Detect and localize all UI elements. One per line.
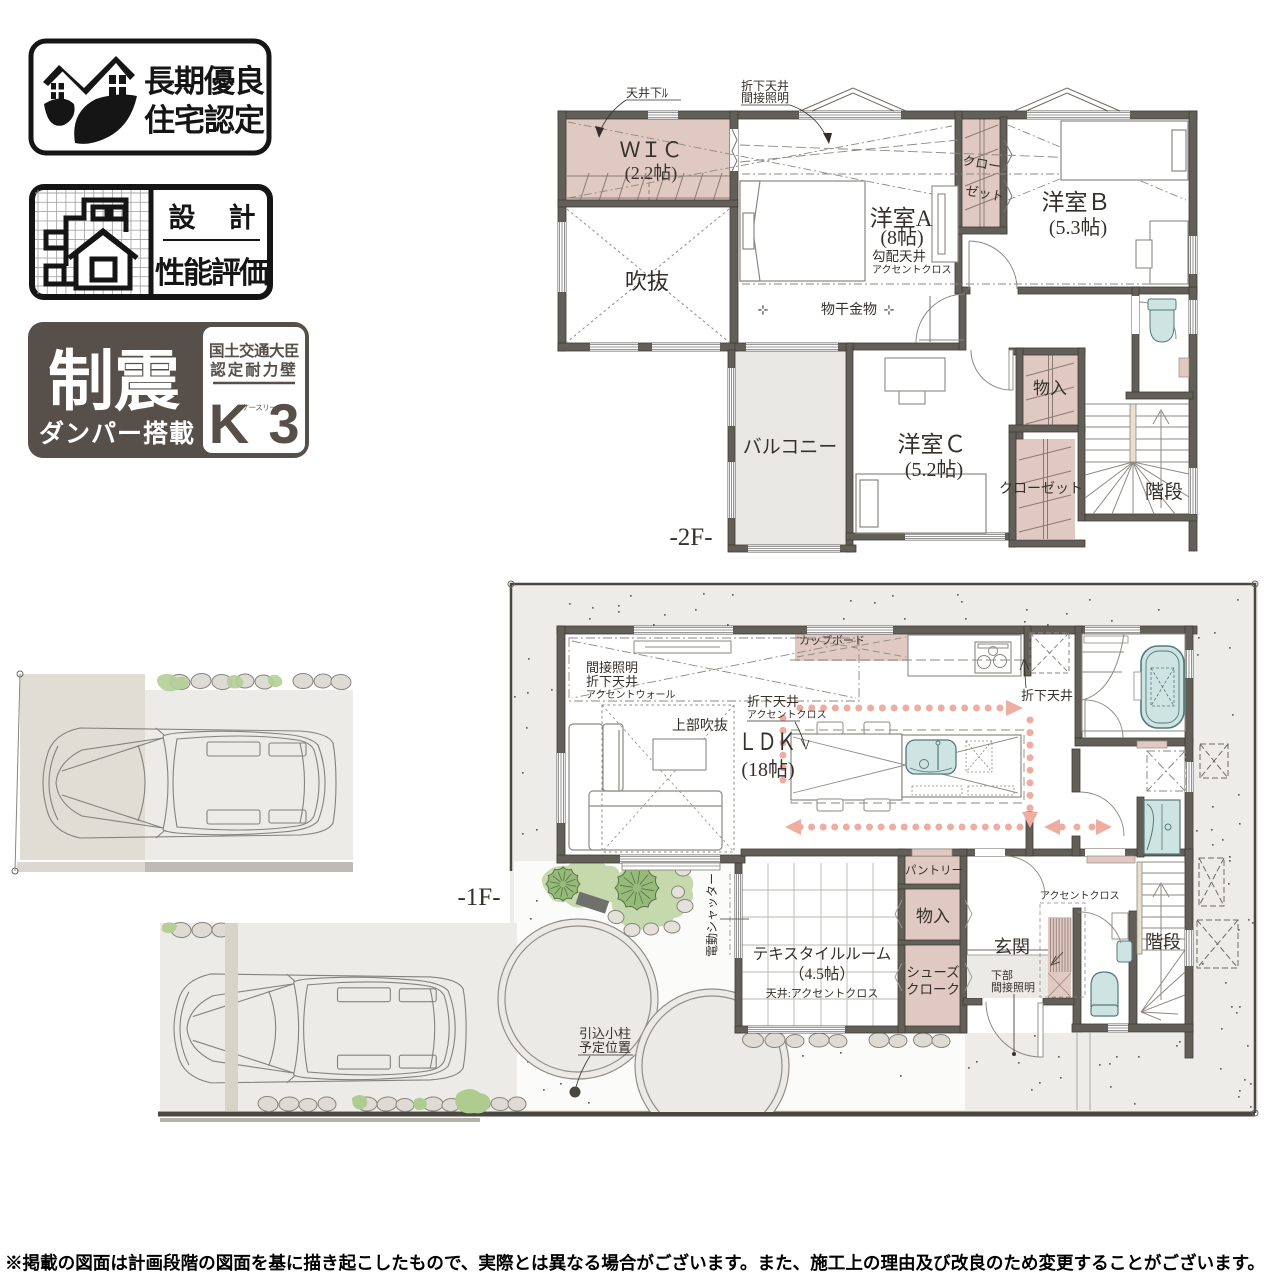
svg-text:勾配天井: 勾配天井 xyxy=(872,249,926,264)
svg-text:アクセントクロス: アクセントクロス xyxy=(747,709,827,721)
svg-text:間接照明: 間接照明 xyxy=(741,90,789,105)
svg-text:折下天井: 折下天井 xyxy=(586,674,638,689)
svg-text:物入: 物入 xyxy=(916,907,950,926)
svg-text:テキスタイルルーム: テキスタイルルーム xyxy=(753,945,892,963)
svg-text:(5.3帖): (5.3帖) xyxy=(1049,216,1107,239)
svg-text:洋室Ｃ: 洋室Ｃ xyxy=(898,432,967,457)
svg-text:折下天井: 折下天井 xyxy=(747,694,799,709)
svg-text:物入: 物入 xyxy=(1033,379,1067,398)
svg-text:国土交通大臣: 国土交通大臣 xyxy=(209,341,299,360)
svg-text:⊹: ⊹ xyxy=(884,302,895,317)
svg-text:クローク: クローク xyxy=(906,982,960,997)
svg-text:玄関: 玄関 xyxy=(994,937,1030,957)
svg-text:アクセントウォール: アクセントウォール xyxy=(586,689,676,701)
svg-text:天井下ﾙ: 天井下ﾙ xyxy=(626,86,668,100)
svg-text:※掲載の図面は計画段階の図面を基に描き起こしたもので、実際と: ※掲載の図面は計画段階の図面を基に描き起こしたもので、実際とは異なる場合がござい… xyxy=(5,1252,1265,1273)
svg-text:K: K xyxy=(209,392,249,455)
svg-text:-2F-: -2F- xyxy=(669,524,712,551)
svg-text:階段: 階段 xyxy=(1145,932,1181,952)
svg-text:住宅認定: 住宅認定 xyxy=(144,103,265,138)
svg-text:間接照明: 間接照明 xyxy=(991,981,1035,994)
svg-text:制震: 制震 xyxy=(48,346,181,419)
svg-text:階段: 階段 xyxy=(1145,481,1183,503)
svg-text:⊹: ⊹ xyxy=(758,302,769,317)
svg-text:下部: 下部 xyxy=(991,968,1013,982)
svg-text:間接照明: 間接照明 xyxy=(586,660,638,675)
svg-text:天井:アクセントクロス: 天井:アクセントクロス xyxy=(766,986,879,1000)
svg-text:ダンパー搭載: ダンパー搭載 xyxy=(39,419,195,448)
svg-text:設: 設 xyxy=(169,202,197,233)
svg-text:電動シャッター: 電動シャッター xyxy=(705,873,719,957)
svg-text:上部吹抜: 上部吹抜 xyxy=(672,718,728,734)
svg-text:(5.2帖): (5.2帖) xyxy=(905,458,963,481)
svg-text:シューズ: シューズ xyxy=(906,965,959,980)
svg-text:認定耐力壁: 認定耐力壁 xyxy=(210,360,298,379)
svg-text:物干金物: 物干金物 xyxy=(821,302,877,318)
svg-text:長期優良: 長期優良 xyxy=(144,64,265,99)
svg-text:ＬＤＫ: ＬＤＫ xyxy=(738,730,796,756)
svg-text:引込小柱: 引込小柱 xyxy=(579,1026,631,1041)
svg-text:バルコニー: バルコニー xyxy=(743,437,838,458)
svg-text:アクセントクロス: アクセントクロス xyxy=(872,264,952,276)
svg-text:カップボード: カップボード xyxy=(799,634,865,647)
svg-text:吹抜: 吹抜 xyxy=(625,269,669,294)
svg-text:予定位置: 予定位置 xyxy=(579,1040,631,1055)
svg-text:（4.5帖）: （4.5帖） xyxy=(789,965,855,983)
svg-text:パントリー: パントリー xyxy=(905,864,963,877)
svg-text:(8帖): (8帖) xyxy=(880,226,923,249)
svg-text:性能評価: 性能評価 xyxy=(155,256,269,290)
svg-text:洋室Ｂ: 洋室Ｂ xyxy=(1042,190,1111,215)
svg-text:折下天井: 折下天井 xyxy=(1021,688,1073,703)
svg-text:計: 計 xyxy=(229,202,256,233)
svg-text:クローゼット: クローゼット xyxy=(999,481,1083,497)
svg-text:3: 3 xyxy=(268,392,299,455)
svg-text:アクセントクロス: アクセントクロス xyxy=(1040,890,1120,902)
svg-text:-1F-: -1F- xyxy=(457,884,500,911)
svg-text:(2.2帖): (2.2帖) xyxy=(625,163,678,184)
svg-text:ケースリー: ケースリー xyxy=(242,403,277,412)
svg-text:ＷＩＣ: ＷＩＣ xyxy=(620,138,683,162)
svg-text:(18帖): (18帖) xyxy=(741,758,794,781)
